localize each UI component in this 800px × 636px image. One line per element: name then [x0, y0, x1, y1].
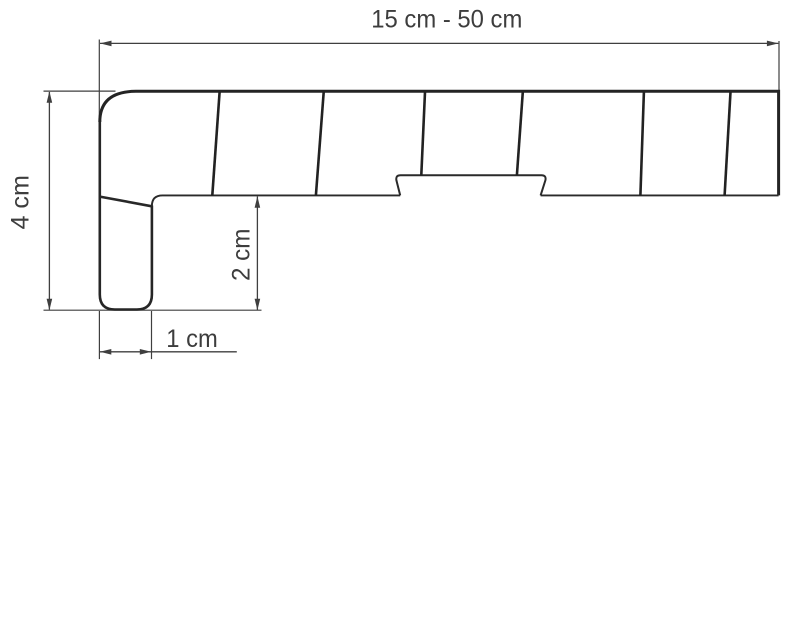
- svg-text:4 cm: 4 cm: [7, 175, 35, 230]
- svg-text:1 cm: 1 cm: [166, 325, 218, 353]
- svg-text:15 cm - 50 cm: 15 cm - 50 cm: [371, 6, 522, 34]
- svg-text:2 cm: 2 cm: [227, 229, 255, 281]
